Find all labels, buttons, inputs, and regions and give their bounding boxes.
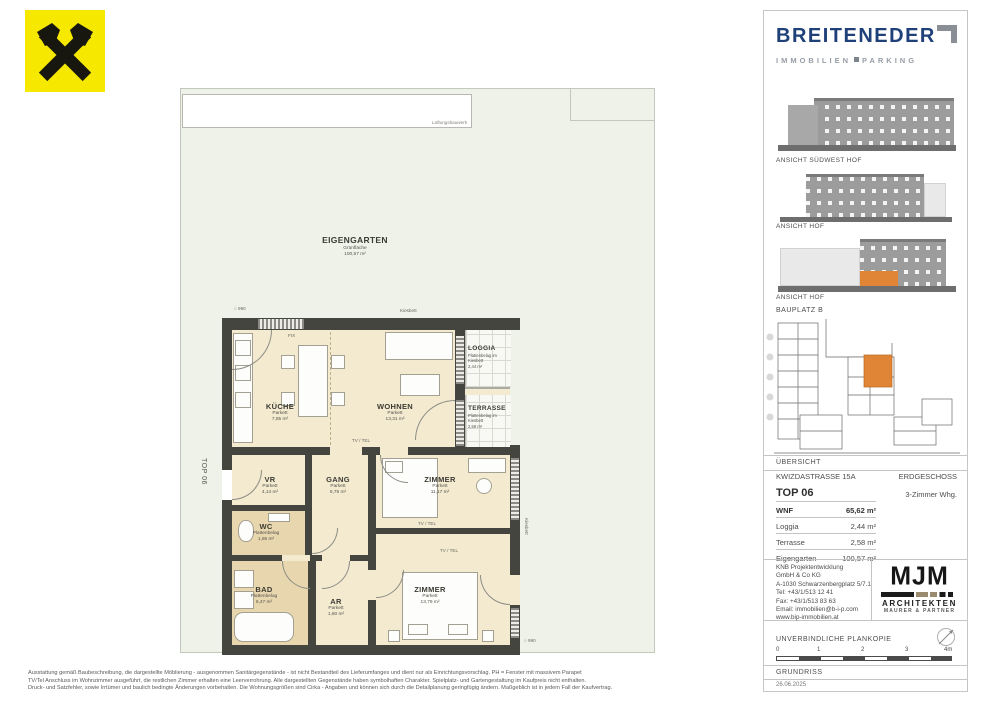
elevation-highlight-orange [860, 271, 898, 286]
unit-label: TOP 06 [776, 487, 814, 499]
wall-bottom [222, 645, 520, 655]
disclaimer-line: Druck- und Satzfehler, sowie Irrtümer un… [28, 685, 728, 693]
room-label-ar: AR Parkett 1,60 m² [314, 597, 358, 618]
coffee-table [400, 374, 440, 396]
mjm-line2: MAURER & PARTNER [872, 608, 967, 614]
grundriss-label: GRUNDRISS [764, 666, 967, 679]
window-terrasse-door [456, 400, 464, 446]
nightstand [388, 630, 400, 642]
elevation-building [814, 101, 954, 145]
elevation-neighbour [780, 248, 860, 286]
pillow [408, 624, 428, 635]
brand-title: BREITENEDER [776, 25, 936, 48]
brand-subtitle-right: PARKING [862, 56, 917, 65]
uebersicht-label: ÜBERSICHT [764, 456, 967, 466]
kiesbett-label: Kiesbett [400, 308, 417, 313]
pillow [448, 624, 468, 635]
metric-row: WNF 65,62 m² [776, 502, 876, 518]
elevation-ground [780, 217, 952, 222]
window-loggia-door [456, 336, 464, 384]
height-marker: ○ 990 [524, 638, 536, 643]
contact-block: KNB Projektentwicklung GmbH & Co KG A-10… [764, 560, 872, 620]
room-label-vr: VR Parkett 4,14 m² [248, 475, 292, 496]
elevation-roof [806, 174, 924, 177]
corner-bracket-icon [937, 25, 957, 43]
wall-gang-zimmer-upper [368, 455, 376, 570]
info-block: KWIZDASTRASSE 15A ERDGESCHOSS TOP 06 3-Z… [776, 472, 957, 565]
elevation-roof [860, 239, 946, 242]
elevation-hof-2 [774, 237, 959, 293]
wall-mid-3 [408, 447, 520, 455]
garden-area-value: 100,57 m² [285, 252, 425, 258]
disclaimer-line: Ausstattung gemäß Baubeschreibung, die d… [28, 670, 728, 678]
elevation-label-1: ANSICHT SÜDWEST HOF [776, 157, 862, 164]
contact-section: KNB Projektentwicklung GmbH & Co KG A-10… [764, 559, 967, 621]
mjm-bar-icon [881, 592, 959, 597]
desk-chair [476, 478, 492, 494]
kueche-wohnen-divider [330, 332, 331, 445]
ventilation-label: Lüftungsbauwerk [432, 120, 467, 125]
window-top [258, 319, 304, 329]
garden-title: EIGENGARTEN [285, 235, 425, 246]
brand-block: BREITENEDER IMMOBILIENPARKING [776, 25, 957, 68]
address-label: KWIZDASTRASSE 15A [776, 472, 856, 481]
brand-square-icon [854, 57, 859, 62]
scale-bar [776, 656, 952, 661]
kitchen-fridge [235, 392, 251, 408]
desk [468, 458, 506, 473]
wall-vr-wc [232, 505, 305, 511]
elevation-suedwest [774, 83, 959, 153]
unit-type-label: 3-Zimmer Whg. [905, 490, 957, 499]
scale-bar-block: 0 1 2 3 4m [776, 647, 957, 661]
chair [331, 355, 345, 369]
elevation-wing [924, 183, 946, 217]
chair [331, 392, 345, 406]
wall-zimmer-split [376, 528, 520, 534]
elevation-building [806, 177, 924, 217]
metric-row: Terrasse 2,58 m² [776, 534, 876, 550]
elevation-ground [778, 145, 956, 151]
room-label-kueche: KÜCHE Parkett 7,85 m² [250, 402, 310, 423]
tv-tel-label: TV / TEL [352, 438, 370, 443]
mjm-monogram: MJM [872, 561, 967, 591]
garden-boundary-line [570, 88, 571, 121]
site-plan [764, 317, 969, 457]
chair [281, 355, 295, 369]
fix-label: FIX [288, 333, 295, 338]
wall-gang-zimmer-lower [368, 600, 376, 645]
room-label-zimmer-2: ZIMMER Parkett 13,79 m² [402, 585, 458, 606]
metric-row: Loggia 2,44 m² [776, 518, 876, 534]
elevation-wing [788, 105, 818, 145]
room-label-bad: BAD Plattenbelag 6,47 m² [240, 585, 288, 606]
wall-low-1 [222, 555, 282, 561]
kiesbett-label-vertical: Kiesbett [524, 518, 529, 535]
tv-tel-label: TV / TEL [440, 548, 458, 553]
ventilation-structure: Lüftungsbauwerk [182, 94, 472, 128]
elevation-label-3: ANSICHT HOF [776, 294, 824, 301]
date-label: 26.06.2025 [776, 682, 806, 688]
room-label-wohnen: WOHNEN Parkett 13,31 m² [360, 402, 430, 423]
nightstand [482, 630, 494, 642]
plan-page: Lüftungsbauwerk EIGENGARTEN Grünfläche 1… [0, 0, 1000, 706]
garden-boundary-line [570, 120, 655, 121]
entrance-gap [222, 470, 232, 500]
room-label-gang: GANG Parkett 5,75 m² [312, 475, 364, 496]
floor-label: ERDGESCHOSS [899, 472, 957, 481]
elevation-ground [778, 286, 956, 292]
height-marker: ○ 990 [234, 306, 246, 311]
door-gap-garden [510, 575, 520, 605]
tv-tel-label: TV / TEL [418, 521, 436, 526]
wc-sink [268, 513, 290, 522]
room-label-zimmer-1: ZIMMER Parkett 11,17 m² [412, 475, 468, 496]
elevation-hof-1 [774, 171, 959, 223]
wall-gang-vr [305, 455, 312, 555]
architect-logo: MJM ARCHITEKTEN MAURER & PARTNER [872, 560, 967, 620]
room-label-terrasse: TERRASSE Plattenbelag im Kiesbett 2,58 m… [468, 405, 512, 429]
wall-mid-2 [362, 447, 380, 455]
grundriss-row: GRUNDRISS [764, 665, 967, 680]
window-zimmer-2 [511, 608, 519, 638]
sofa [385, 332, 453, 360]
elevation-roof [814, 98, 954, 101]
footer-disclaimer: Ausstattung gemäß Baubeschreibung, die d… [28, 670, 728, 693]
brand-subtitle-left: IMMOBILIEN [776, 56, 851, 65]
plankopie-label: UNVERBINDLICHE PLANKOPIE [776, 636, 891, 643]
bauplatz-label: BAUPLATZ B [776, 307, 823, 314]
room-label-loggia: LOGGIA Plattenbelag im Kiesbett 2,44 m² [468, 345, 512, 369]
wall-left-lower [222, 500, 232, 655]
sidebar-panel: BREITENEDER IMMOBILIENPARKING ANSICHT SÜ… [763, 10, 968, 692]
mjm-line1: ARCHITEKTEN [872, 599, 967, 608]
garden-label: EIGENGARTEN Grünfläche 100,57 m² [285, 235, 425, 258]
bathtub [234, 612, 294, 642]
window-zimmer-1 [511, 458, 519, 520]
room-label-wc: WC Plattenbelag 1,95 m² [244, 522, 288, 543]
loggia-terrasse-divider [465, 387, 510, 389]
uebersicht-row: ÜBERSICHT [764, 455, 967, 471]
unit-number-label: TOP 06 [200, 458, 207, 485]
wall-mid-1 [222, 447, 330, 455]
raiffeisen-logo-icon [25, 10, 105, 92]
elevation-label-2: ANSICHT HOF [776, 223, 824, 230]
